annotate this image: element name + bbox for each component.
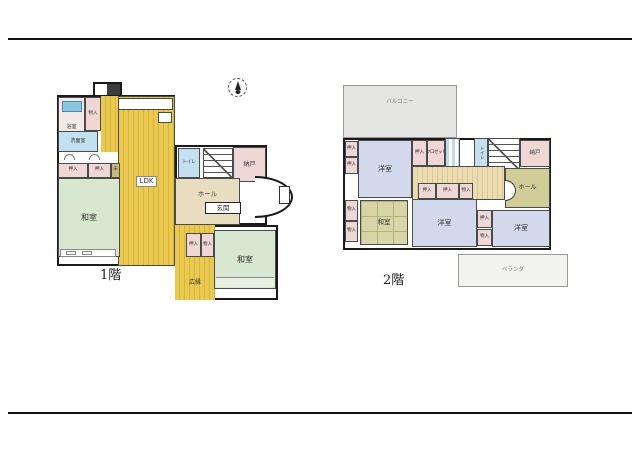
- f2-toilet-label: トイレ: [479, 146, 484, 160]
- compass-north-icon: [228, 78, 247, 97]
- f2-mono-w1-label: 物入: [347, 208, 356, 213]
- f2-oshiire-m2-label: 押入: [443, 189, 452, 194]
- f1-oshiire-a-label: 押入: [69, 168, 78, 173]
- f2-yoshitsu-a: 洋室: [358, 140, 412, 198]
- f1-genkan-label: 玄関: [217, 205, 230, 212]
- f1-washitsu-b-label: 和室: [237, 256, 253, 264]
- page-bottom-rule: [8, 412, 632, 414]
- f2-hall-label: ホール: [518, 185, 536, 191]
- f1-mono-c: 物入: [201, 233, 214, 257]
- f2-mono-w2-label: 物入: [347, 229, 356, 234]
- f2-toilet: トイレ: [474, 138, 488, 168]
- f2-closet-top-label: クロゼット: [426, 151, 446, 156]
- f2-washitsu-label: 和室: [378, 219, 391, 226]
- f1-stairs: [203, 148, 233, 178]
- f1-washroom: 洗面室: [58, 131, 98, 152]
- f2-oshiire-m2: 押入: [436, 183, 459, 199]
- f2-blue-striped-closet: [445, 138, 460, 168]
- f2-yoshitsu-c: 洋室: [492, 210, 550, 247]
- f1-mono-c-label: 物入: [203, 243, 212, 248]
- f2-oshiire-top: 押入: [412, 140, 427, 166]
- f2-oshiire-m1: 押入: [418, 183, 436, 199]
- f2-mono-e: 物入: [477, 229, 492, 246]
- f2-veranda: ベランダ: [458, 254, 568, 287]
- f2-mono-m-label: 物入: [462, 189, 471, 194]
- f1-oshiire-c: 押入: [186, 233, 201, 257]
- f1-hall-label: ホール: [198, 191, 218, 198]
- f1-washitsu-b-strip: [216, 277, 274, 287]
- f1-kitchen-appliance: [158, 112, 172, 123]
- f1-door-arc-1: [64, 154, 75, 160]
- f1-dark-storage-area: [107, 84, 120, 95]
- f2-mono-e-label: 物入: [480, 235, 489, 240]
- f2-balcony: バルコニー: [343, 85, 457, 138]
- f2-mono-m: 物入: [459, 183, 473, 199]
- f2-oshiire-top-label: 押入: [415, 151, 424, 156]
- f2-yoshitsu-b: 洋室: [412, 199, 477, 247]
- f1-oshiire-c-label: 押入: [189, 243, 198, 248]
- f2-mono-w1: 物入: [345, 200, 358, 221]
- f1-toilet: トイレ: [178, 148, 200, 178]
- f1-ldk-extension: [101, 96, 118, 152]
- f1-engawa-mark-1: [66, 251, 76, 255]
- f2-oshiire-e-label: 押入: [480, 217, 489, 222]
- f1-oshiire-a: 押入: [58, 163, 88, 178]
- f1-bathtub: [62, 101, 82, 112]
- f1-kitchen-counter: [118, 98, 173, 110]
- f1-ldk-label: LDK: [136, 176, 158, 187]
- f1-hiroen-label: 広縁: [189, 280, 201, 286]
- f2-yoshitsu-c-label: 洋室: [514, 225, 528, 232]
- floor1-caption: 1階: [100, 269, 121, 282]
- f2-yoshitsu-b-label: 洋室: [438, 220, 452, 227]
- floor2-caption: 2階: [383, 274, 404, 287]
- page-top-rule: [8, 38, 632, 40]
- f1-tokonoma: 床: [111, 163, 120, 178]
- f2-veranda-label: ベランダ: [502, 268, 524, 274]
- f2-oshiire-m1-label: 押入: [423, 189, 432, 194]
- f1-toilet-label: トイレ: [182, 161, 196, 166]
- f2-nando-ne: 納戸: [520, 140, 550, 167]
- f2-oshiire-w1: 押入: [345, 141, 358, 157]
- f2-oshiire-w1-label: 押入: [347, 147, 356, 152]
- f1-washroom-label: 洗面室: [70, 139, 85, 144]
- f1-door-arc-2: [89, 154, 100, 160]
- floorplan-page: LDK 浴室 物入 洗面室 押入 押入 床 和室: [0, 0, 640, 452]
- f2-yoshitsu-a-label: 洋室: [378, 166, 392, 173]
- f2-nando-ne-label: 納戸: [529, 151, 540, 157]
- f1-bathroom-label: 浴室: [66, 125, 76, 130]
- f1-nando-label: 納戸: [243, 162, 255, 168]
- north-arrow-base: [235, 90, 240, 94]
- f1-tokonoma-label: 床: [113, 168, 118, 173]
- f2-balcony-label: バルコニー: [386, 100, 413, 106]
- f2-closet-top: クロゼット: [427, 140, 445, 166]
- f2-mono-w2: 物入: [345, 221, 358, 242]
- f1-porch-step: [279, 186, 290, 204]
- f2-oshiire-e: 押入: [477, 210, 492, 228]
- f1-washitsu-a-label: 和室: [81, 214, 97, 222]
- f1-storage-top-label: 物入: [89, 112, 98, 117]
- f1-oshiire-b: 押入: [88, 163, 111, 178]
- f1-storage-top: 物入: [85, 97, 101, 131]
- f2-oshiire-w2: 押入: [345, 157, 358, 174]
- f1-engawa-mark-2: [82, 251, 92, 255]
- f2-oshiire-w2-label: 押入: [347, 163, 356, 168]
- f1-genkan: 玄関: [205, 202, 241, 214]
- north-arrow-head: [235, 81, 241, 90]
- f1-washitsu-a: 和室: [58, 178, 120, 257]
- f1-oshiire-b-label: 押入: [95, 168, 104, 173]
- f2-washitsu: 和室: [360, 200, 408, 245]
